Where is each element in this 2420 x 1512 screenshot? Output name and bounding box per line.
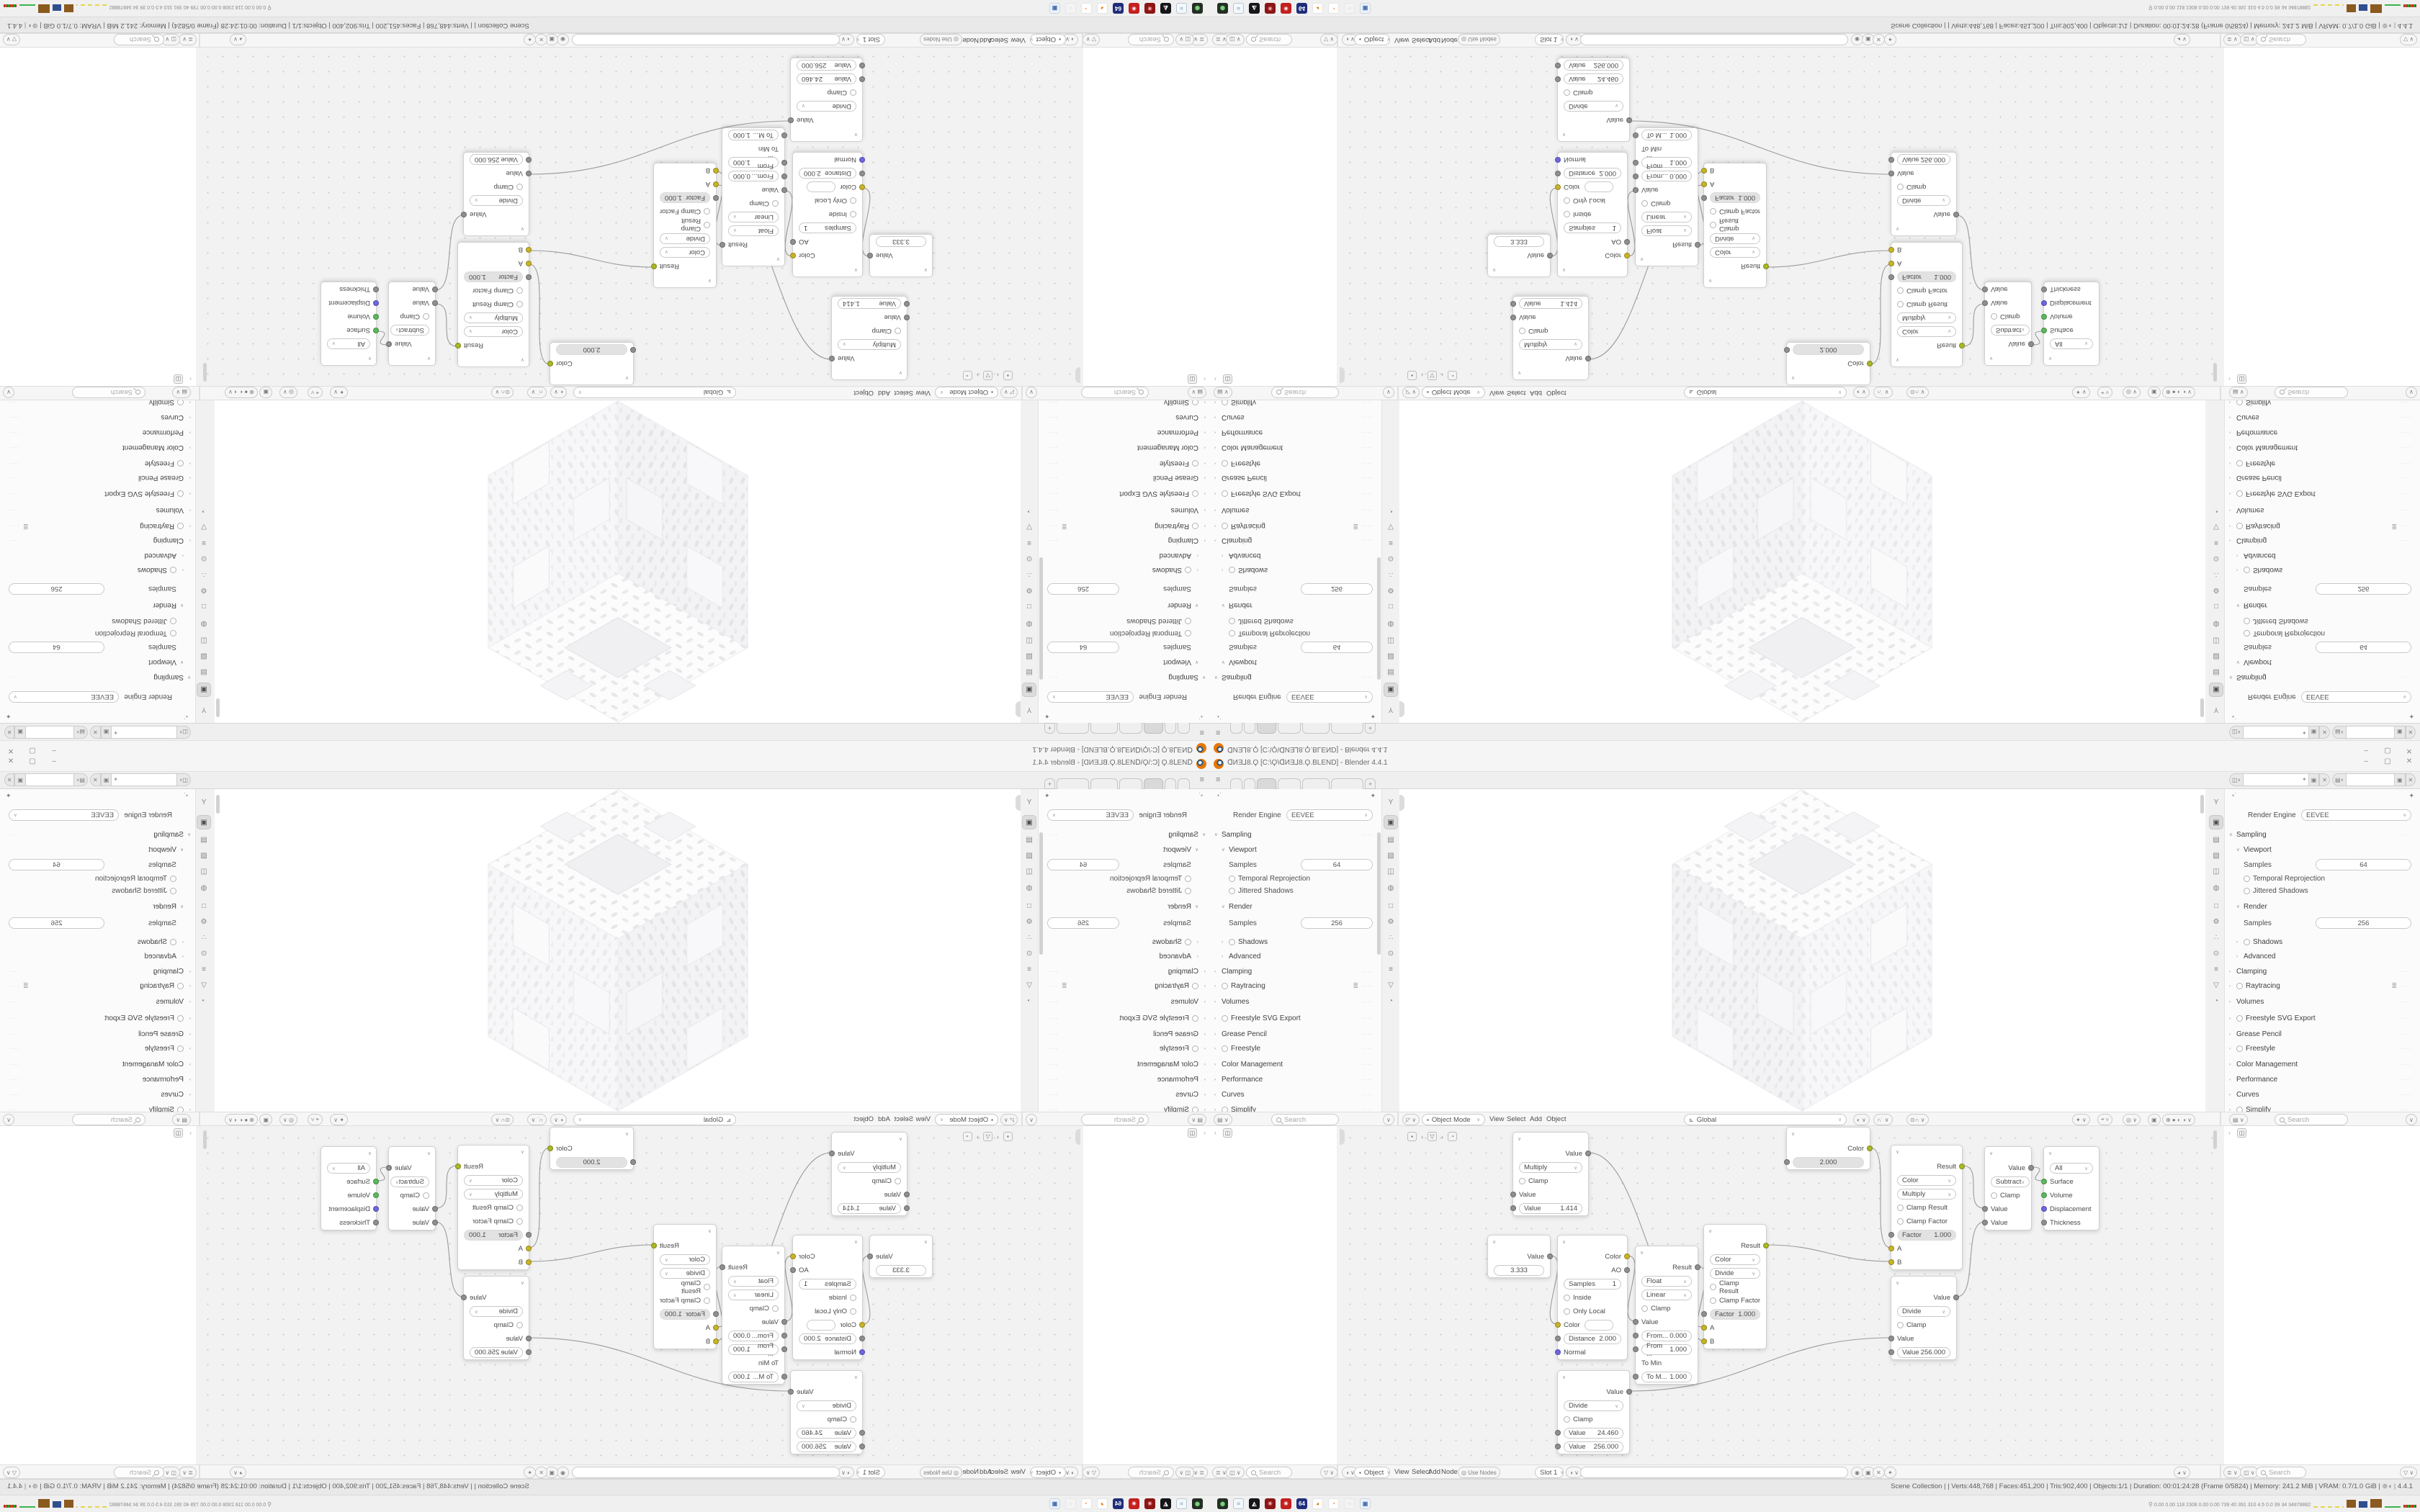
- socket-in[interactable]: [781, 132, 787, 138]
- options-button[interactable]: ∨: [3, 387, 14, 398]
- property-row[interactable]: ›Raytracing≣····: [4, 980, 191, 991]
- view-layer-selector[interactable]: ▤∨ ▣ ✕: [1, 726, 88, 739]
- value-field[interactable]: 256: [2316, 917, 2411, 929]
- socket-in-value[interactable]: [781, 1319, 787, 1325]
- shader-node-math-divide-256[interactable]: ∨ValueDivide∨ClampValueValue256.000: [463, 1276, 529, 1360]
- menu-node[interactable]: Node: [1441, 1468, 1458, 1476]
- socket-in-volume[interactable]: [373, 314, 379, 320]
- properties-tab-object[interactable]: □: [1384, 599, 1398, 613]
- property-row[interactable]: Jittered Shadows: [4, 885, 176, 896]
- socket-out-value[interactable]: [788, 1389, 794, 1395]
- expand-icon[interactable]: ›: [1204, 1130, 1206, 1136]
- property-row[interactable]: ›Raytracing≣····: [1043, 521, 1206, 532]
- editor-type-button[interactable]: ▤ ∨: [1188, 1114, 1206, 1125]
- workspace-tab[interactable]: [1244, 778, 1255, 789]
- menu-add[interactable]: Add: [1530, 1115, 1542, 1123]
- outliner-left[interactable]: › ◫: [1083, 48, 1210, 386]
- copy-icon[interactable]: ▣: [2308, 726, 2320, 739]
- property-row[interactable]: ›Freestyle····: [2229, 458, 2416, 469]
- node-value-field[interactable]: Value256.000: [1564, 60, 1623, 71]
- color-swatch[interactable]: [807, 181, 835, 192]
- property-row[interactable]: Jittered Shadows: [1043, 885, 1191, 896]
- filter-button[interactable]: ▽ ∨: [3, 1467, 20, 1478]
- expand-icon[interactable]: ›: [189, 376, 192, 382]
- proportional-editing-button[interactable]: ⊙∩ ∨: [491, 1114, 514, 1125]
- add-workspace-button[interactable]: +: [1365, 723, 1376, 734]
- node-value-field[interactable]: From...0.000: [728, 1331, 779, 1341]
- properties-tab-view-layer[interactable]: ▧: [197, 848, 211, 863]
- workspace-tab[interactable]: [1244, 723, 1255, 734]
- close-button[interactable]: ✕: [6, 747, 16, 755]
- area-divider[interactable]: [2220, 1465, 2221, 1478]
- socket-in-value[interactable]: [1633, 1319, 1639, 1325]
- taskbar-icon-obs[interactable]: ◉: [1217, 3, 1228, 14]
- property-row[interactable]: ›Freestyle SVG Export····: [4, 1012, 191, 1024]
- mode-icon-button[interactable]: ◸ ∨: [1402, 1114, 1420, 1125]
- copy-icon[interactable]: ▣: [101, 773, 112, 786]
- property-row[interactable]: ∨Sampling····: [1214, 829, 1377, 840]
- snap-node-button[interactable]: ◕ ∨: [2174, 34, 2190, 45]
- gizmo-button[interactable]: ✦ ∨: [2072, 387, 2090, 398]
- property-row[interactable]: Render EngineEEVEE∨: [1043, 809, 1206, 821]
- properties-tab-output[interactable]: ▤: [2209, 665, 2223, 680]
- socket-in[interactable]: [526, 1349, 532, 1355]
- node-dropdown[interactable]: Linear∨: [728, 212, 779, 222]
- socket-out-result[interactable]: [720, 242, 725, 248]
- shader-node-math-multiply-sqrt2[interactable]: ∨ValueMultiply∨ClampValueValue1.414: [831, 296, 907, 380]
- socket-out-color[interactable]: [790, 253, 796, 258]
- property-row[interactable]: ›Advanced: [1043, 550, 1198, 562]
- properties-tab-output[interactable]: ▤: [1384, 832, 1398, 847]
- property-row[interactable]: ›Performance····: [1043, 1074, 1206, 1085]
- shading-mode-buttons[interactable]: ⊕ ● ◐ ◑ ∨: [2162, 387, 2195, 398]
- properties-tab-particles[interactable]: ∴: [1384, 567, 1398, 582]
- socket-out-result[interactable]: [651, 1243, 657, 1248]
- node-dropdown[interactable]: Multiply∨: [838, 339, 901, 350]
- pivot-point-button[interactable]: ◐ ∨: [1853, 387, 1870, 398]
- proportional-editing-button[interactable]: ⊙∩ ∨: [1906, 387, 1929, 398]
- toggle-button[interactable]: ▣: [259, 1114, 272, 1125]
- property-row[interactable]: ›Advanced: [4, 950, 184, 962]
- property-row[interactable]: Temporal Reprojection: [2244, 628, 2416, 639]
- options-button[interactable]: ∨: [1026, 387, 1037, 398]
- pin-button[interactable]: ✦: [1884, 1467, 1896, 1478]
- overlays-button[interactable]: ⌖ ∨: [308, 1114, 323, 1125]
- socket-in-b[interactable]: [713, 1338, 719, 1344]
- node-dropdown[interactable]: Float∨: [1641, 225, 1692, 236]
- taskbar-icon-paint-red[interactable]: ✳: [1265, 1498, 1276, 1509]
- system-monitor-widget[interactable]: ⚲ 0.00 0.00 118 2308 0.00 0.00 739 40 39…: [2148, 1498, 2416, 1511]
- properties-tab-render[interactable]: ▣: [197, 683, 211, 697]
- socket-in-value[interactable]: [781, 187, 787, 193]
- menu-view[interactable]: View: [1489, 1115, 1504, 1123]
- node-dropdown[interactable]: Subtract∨: [390, 325, 429, 336]
- socket-in-value[interactable]: [1982, 287, 1988, 292]
- toggle-button[interactable]: ▣: [259, 387, 272, 398]
- xray-button[interactable]: ◎ ∨: [2123, 387, 2141, 398]
- socket-out-color[interactable]: [1624, 253, 1630, 258]
- shader-node-mix-multiply[interactable]: ∨ResultColor∨Multiply∨Clamp ResultClamp …: [1891, 242, 1963, 367]
- workspace-tab[interactable]: [1165, 778, 1176, 789]
- search-input[interactable]: Search: [1081, 1114, 1149, 1125]
- scene-icon[interactable]: ◫∨: [176, 726, 191, 739]
- workspace-tab[interactable]: [1165, 723, 1176, 734]
- view-layer-field[interactable]: [2347, 773, 2394, 786]
- shader-node-mix-partial[interactable]: ∨Color2.000: [1786, 1127, 1870, 1170]
- node-value-field[interactable]: Distance2.000: [1564, 1333, 1621, 1344]
- object-mode-dropdown[interactable]: ▪Object Mode∨: [1422, 1114, 1485, 1125]
- transform-orientation-dropdown[interactable]: ⊾Global∨: [1684, 1114, 1847, 1125]
- area-divider[interactable]: [1397, 1112, 1399, 1125]
- property-row[interactable]: ›Advanced: [2236, 550, 2416, 562]
- minimize-button[interactable]: –: [2361, 757, 2371, 765]
- socket-in-surface[interactable]: [2041, 1179, 2047, 1184]
- properties-tab-render[interactable]: ▣: [1384, 683, 1398, 697]
- render-engine-dropdown[interactable]: EEVEE∨: [1047, 691, 1134, 703]
- socket-in-volume[interactable]: [373, 1192, 379, 1198]
- property-row[interactable]: ›Color Management····: [4, 442, 191, 454]
- unlink-icon[interactable]: ✕: [2319, 773, 2330, 786]
- node-dropdown[interactable]: Color∨: [1710, 247, 1760, 258]
- properties-tab-scene[interactable]: ◫: [197, 864, 211, 878]
- scene-selector[interactable]: ◫∨ ✦ ▣ ✕: [90, 773, 191, 786]
- shader-node-material-output[interactable]: ∨All∨SurfaceVolumeDisplacementThickness: [321, 282, 377, 366]
- menu-node[interactable]: Node: [962, 1468, 979, 1476]
- socket-out-value[interactable]: [386, 341, 392, 347]
- taskbar-icon-obs[interactable]: ◉: [1217, 1498, 1228, 1509]
- workspace-tab[interactable]: [1119, 723, 1142, 734]
- property-row[interactable]: Samples256: [2244, 583, 2416, 595]
- property-row[interactable]: ›Grease Pencil····: [1214, 1028, 1377, 1040]
- search-input[interactable]: Search: [1246, 34, 1292, 45]
- render-engine-dropdown[interactable]: EEVEE∨: [1286, 809, 1373, 821]
- socket-in-surface[interactable]: [373, 328, 379, 333]
- editor-type-button[interactable]: ▤ ∨: [2229, 387, 2248, 398]
- node-value-field[interactable]: Factor1.000: [464, 1230, 523, 1241]
- shader-node-mix-divide[interactable]: ∨ResultColor∨Divide∨Clamp ResultClamp Fa…: [1703, 1224, 1767, 1349]
- property-row[interactable]: ›Grease Pencil····: [2229, 1028, 2416, 1040]
- socket-in-displacement[interactable]: [2041, 300, 2047, 306]
- menu-node[interactable]: Node: [962, 36, 979, 44]
- snap-node-button[interactable]: ◕ ∨: [2174, 1467, 2190, 1478]
- display-mode-button[interactable]: ◫ ∨: [161, 1467, 180, 1478]
- node-dropdown[interactable]: Color∨: [1710, 1254, 1760, 1265]
- properties-tab-constraints[interactable]: ≡: [1384, 536, 1398, 550]
- properties-tab-constraints[interactable]: ≡: [2209, 962, 2223, 976]
- scene-selector[interactable]: ◫∨ ✦ ▣ ✕: [2229, 773, 2330, 786]
- properties-tab-tool[interactable]: Y: [1384, 795, 1398, 809]
- property-row[interactable]: ›Raytracing≣····: [1043, 980, 1206, 991]
- transform-orientation-dropdown[interactable]: ⊾Global∨: [1684, 387, 1847, 398]
- property-row[interactable]: ›Clamping····: [1214, 966, 1377, 977]
- scrollbar[interactable]: [1039, 832, 1043, 955]
- properties-tab-material[interactable]: ◔: [197, 504, 211, 518]
- menu-hamburger-icon[interactable]: ≡: [1200, 775, 1204, 784]
- menu-add[interactable]: Add: [1530, 389, 1542, 397]
- search-input[interactable]: Search: [2275, 1114, 2348, 1125]
- color-swatch[interactable]: [1585, 181, 1613, 192]
- pin-icon[interactable]: ✦: [6, 792, 12, 800]
- shader-type-dropdown[interactable]: ▪Object∨: [1030, 34, 1066, 45]
- view-layer-selector[interactable]: ▤∨ ▣ ✕: [1, 773, 88, 786]
- editor-type-button[interactable]: ≣ ∨: [2223, 34, 2241, 45]
- expand-icon[interactable]: ›: [2228, 1130, 2231, 1136]
- expand-icon[interactable]: ›: [1214, 1130, 1216, 1136]
- property-row[interactable]: ∨Render: [1222, 600, 1377, 611]
- socket-out-result[interactable]: [1763, 1243, 1769, 1248]
- property-row[interactable]: ›Grease Pencil····: [1043, 1028, 1206, 1040]
- pin-icon[interactable]: ✦: [2408, 712, 2414, 720]
- properties-tab-data[interactable]: ▽: [2209, 520, 2223, 534]
- node-value-field[interactable]: Factor1.000: [660, 192, 710, 203]
- socket-in[interactable]: [904, 301, 910, 307]
- node-value-field[interactable]: Value24.460: [1564, 73, 1623, 84]
- properties-tab-scene[interactable]: ◫: [2209, 864, 2223, 878]
- shader-node-material-output[interactable]: ∨All∨SurfaceVolumeDisplacementThickness: [321, 1146, 377, 1230]
- node-value-field[interactable]: Samples1: [1564, 222, 1621, 233]
- value-field[interactable]: 64: [2316, 859, 2411, 870]
- viewport-scroll-pill[interactable]: [216, 795, 220, 814]
- socket-in-b[interactable]: [1888, 247, 1894, 253]
- minimize-button[interactable]: –: [49, 757, 59, 765]
- socket-out-value[interactable]: [1953, 1295, 1959, 1300]
- property-row[interactable]: ∨Viewport: [4, 657, 184, 668]
- socket-out-value[interactable]: [2028, 341, 2034, 347]
- display-mode-button[interactable]: ◫ ∨: [1226, 34, 1245, 45]
- property-row[interactable]: Temporal Reprojection: [2244, 873, 2416, 884]
- property-row[interactable]: ›Advanced: [4, 550, 184, 562]
- property-row[interactable]: ›Clamping····: [1214, 535, 1377, 546]
- filter-button[interactable]: ▽ ∨: [2400, 1467, 2417, 1478]
- taskbar-icon-blender[interactable]: ◕: [1097, 3, 1108, 14]
- viewport-3d[interactable]: [215, 789, 1021, 1112]
- node-value-field[interactable]: Value256.000: [1897, 154, 1950, 165]
- menu-add[interactable]: Add: [980, 1468, 992, 1476]
- socket-out-value[interactable]: [788, 117, 794, 123]
- socket-in[interactable]: [1888, 157, 1894, 163]
- render-engine-dropdown[interactable]: EEVEE∨: [9, 691, 119, 703]
- node-value-field[interactable]: Samples1: [1564, 1279, 1621, 1290]
- options-button[interactable]: ∨: [1383, 387, 1394, 398]
- socket-in-color[interactable]: [859, 184, 865, 190]
- socket-in-value[interactable]: [526, 171, 532, 176]
- shading-mode-buttons[interactable]: ⊕ ● ◐ ◑ ∨: [2162, 1114, 2195, 1125]
- pin-button[interactable]: ✦: [524, 34, 536, 45]
- property-row[interactable]: Jittered Shadows: [1229, 885, 1377, 896]
- title-bar[interactable]: ᗡИƎ⅃8.Ϙ [C:\Ϙ\ᗡИƎ⅃8.Ϙ.BLEND] - Blender 4…: [1210, 740, 2420, 756]
- area-divider[interactable]: [2220, 387, 2221, 400]
- slot-dropdown[interactable]: Slot 1∨: [1535, 1467, 1564, 1478]
- socket-in-displacement[interactable]: [373, 1206, 379, 1212]
- property-row[interactable]: Jittered Shadows: [2244, 616, 2416, 627]
- node-value-field[interactable]: From...0.000: [1641, 1331, 1692, 1341]
- socket-out-ao[interactable]: [1624, 1267, 1630, 1273]
- xray-button[interactable]: ◎ ∨: [279, 387, 297, 398]
- menu-view[interactable]: View: [1489, 389, 1504, 397]
- socket-out-value[interactable]: [867, 253, 873, 258]
- socket-out-result[interactable]: [1763, 264, 1769, 269]
- socket-out-value[interactable]: [461, 212, 467, 217]
- editor-type-button[interactable]: ▤ ∨: [172, 1114, 191, 1125]
- properties-tab-render[interactable]: ▣: [1022, 683, 1036, 697]
- unlink-icon[interactable]: ✕: [2406, 726, 2416, 739]
- shader-node-math-subtract[interactable]: ∨ValueSubtract∨ClampValueValue: [388, 1146, 436, 1230]
- menu-select[interactable]: Select: [1507, 389, 1525, 397]
- socket-in[interactable]: [1633, 1346, 1639, 1352]
- socket-in-value[interactable]: [432, 1220, 438, 1225]
- shader-node-math-divide-256[interactable]: ∨ValueDivide∨ClampValueValue256.000: [463, 152, 529, 236]
- workspace-tab[interactable]: [1144, 723, 1163, 734]
- socket-in-value[interactable]: [432, 287, 438, 292]
- shader-node-math-divide-24[interactable]: ∨ValueDivide∨ClampValue24.460Value256.00…: [1557, 58, 1630, 142]
- node-value-field[interactable]: Value1.414: [1519, 1203, 1582, 1214]
- title-bar[interactable]: ᗡИƎ⅃8.Ϙ [C:\Ϙ\ᗡИƎ⅃8.Ϙ.BLEND] - Blender 4…: [0, 756, 1210, 772]
- socket-out-value[interactable]: [829, 356, 835, 361]
- scene-name-field[interactable]: ✦: [112, 773, 176, 786]
- socket-in[interactable]: [1633, 1333, 1639, 1338]
- socket-in-value[interactable]: [1510, 315, 1516, 320]
- use-nodes-toggle[interactable]: ◎ Use Nodes: [1458, 34, 1500, 45]
- viewport-3d[interactable]: [215, 400, 1021, 723]
- property-row[interactable]: Samples256: [4, 583, 176, 595]
- taskbar-icon-firefox[interactable]: ◔: [1328, 1498, 1339, 1509]
- search-input[interactable]: Search: [114, 34, 164, 45]
- properties-tab-scene[interactable]: ◫: [2209, 634, 2223, 648]
- sidebar-toggle-handle[interactable]: [1399, 701, 1404, 717]
- taskbar-icon-notepad[interactable]: ≡: [1233, 1498, 1244, 1509]
- copy-icon[interactable]: ▣: [2308, 773, 2320, 786]
- properties-tab-output[interactable]: ▤: [1022, 832, 1036, 847]
- socket-out-value[interactable]: [1585, 1151, 1591, 1156]
- shader-node-ambient-occlusion[interactable]: ∨ColorAOSamples1InsideOnly LocalColorDis…: [792, 1235, 863, 1360]
- property-row[interactable]: ∨Render: [1043, 600, 1198, 611]
- properties-tab-physics[interactable]: ⊙: [197, 946, 211, 960]
- socket-in[interactable]: [781, 174, 787, 179]
- socket-out-color[interactable]: [1867, 1146, 1873, 1151]
- scene-name-field[interactable]: ✦: [2244, 773, 2308, 786]
- property-row[interactable]: ›Volumes····: [4, 505, 191, 516]
- node-value-field[interactable]: Value256.000: [797, 1441, 856, 1452]
- gizmo-button[interactable]: ✦ ∨: [330, 1114, 348, 1125]
- add-workspace-button[interactable]: +: [1365, 778, 1376, 789]
- pin-button[interactable]: ✦: [524, 1467, 536, 1478]
- expand-icon[interactable]: ›: [1214, 376, 1216, 382]
- options-button[interactable]: ∨: [2406, 1114, 2417, 1125]
- property-row[interactable]: ∨Render: [1043, 901, 1198, 912]
- property-row[interactable]: ›Performance····: [1214, 1074, 1377, 1085]
- menu-add[interactable]: Add: [1428, 1468, 1440, 1476]
- properties-tab-physics[interactable]: ⊙: [1384, 552, 1398, 566]
- value-field[interactable]: 256: [1047, 917, 1119, 929]
- menu-add[interactable]: Add: [878, 1115, 890, 1123]
- property-row[interactable]: ›Curves····: [1043, 412, 1206, 423]
- socket-in-b[interactable]: [1888, 1259, 1894, 1265]
- properties-tab-material[interactable]: ◔: [1384, 504, 1398, 518]
- property-row[interactable]: ›Shadows: [2236, 564, 2416, 576]
- properties-tab-object[interactable]: □: [1022, 599, 1036, 613]
- property-row[interactable]: ›Color Management····: [1214, 442, 1377, 454]
- unlink-icon[interactable]: ✕: [90, 773, 101, 786]
- unlink-icon[interactable]: ✕: [4, 726, 15, 739]
- socket-in[interactable]: [1633, 132, 1639, 138]
- scrollbar[interactable]: [2213, 1130, 2217, 1149]
- outliner-right[interactable]: › ◫: [0, 1126, 196, 1464]
- socket-in-thickness[interactable]: [373, 1220, 379, 1225]
- node-dropdown[interactable]: All∨: [327, 1163, 370, 1174]
- socket-in[interactable]: [713, 1311, 719, 1317]
- menu-view[interactable]: View: [1394, 1468, 1409, 1476]
- properties-tab-view-layer[interactable]: ▧: [2209, 848, 2223, 863]
- material-icon-button[interactable]: ◑ ∨: [838, 1467, 854, 1478]
- taskbar-icon-gimp[interactable]: ◭: [1249, 3, 1260, 14]
- area-divider[interactable]: [1021, 1112, 1023, 1125]
- color-swatch[interactable]: [807, 1320, 835, 1331]
- menu-select[interactable]: Select: [1507, 1115, 1525, 1123]
- socket-in-b[interactable]: [526, 247, 532, 253]
- workspace-tab[interactable]: [1302, 778, 1330, 789]
- menu-node[interactable]: Node: [1441, 36, 1458, 44]
- workspace-tab[interactable]: [1119, 778, 1142, 789]
- search-input[interactable]: Search: [72, 387, 145, 398]
- options-button[interactable]: ∨: [3, 1114, 14, 1125]
- pin-icon[interactable]: ✦: [113, 776, 118, 783]
- socket-out-value[interactable]: [1626, 1389, 1632, 1395]
- properties-tab-particles[interactable]: ∴: [1022, 930, 1036, 945]
- properties-tab-object[interactable]: □: [2209, 899, 2223, 913]
- node-dropdown[interactable]: Divide∨: [1564, 1400, 1623, 1411]
- socket-out-value[interactable]: [1626, 117, 1632, 123]
- gizmo-button[interactable]: ✦ ∨: [2072, 1114, 2090, 1125]
- socket-in[interactable]: [781, 1346, 787, 1352]
- pin-icon[interactable]: ✦: [6, 712, 12, 720]
- menu-add[interactable]: Add: [980, 36, 992, 44]
- material-name-field[interactable]: [572, 34, 840, 45]
- node-value-field[interactable]: Samples1: [799, 1279, 856, 1290]
- pivot-point-button[interactable]: ◐ ∨: [550, 1114, 567, 1125]
- scrollbar[interactable]: [1377, 557, 1381, 680]
- filter-button[interactable]: ▽ ∨: [1320, 1467, 1337, 1478]
- socket-out-result[interactable]: [720, 1264, 725, 1270]
- taskbar-icon-settings-red[interactable]: ✳: [1281, 1498, 1291, 1509]
- maximize-button[interactable]: ▢: [27, 747, 37, 755]
- properties-tab-physics[interactable]: ⊙: [1022, 946, 1036, 960]
- overlays-button[interactable]: ⌖ ∨: [2097, 387, 2112, 398]
- socket-in-value[interactable]: [1888, 1336, 1894, 1341]
- title-bar[interactable]: ᗡИƎ⅃8.Ϙ [C:\Ϙ\ᗡИƎ⅃8.Ϙ.BLEND] - Blender 4…: [1210, 756, 2420, 772]
- node-value-field[interactable]: 2.000: [1793, 1157, 1864, 1168]
- node-dropdown[interactable]: Divide∨: [797, 101, 856, 112]
- properties-tab-physics[interactable]: ⊙: [1384, 946, 1398, 960]
- property-row[interactable]: ›Performance····: [2229, 1074, 2416, 1085]
- scrollbar[interactable]: [1377, 832, 1381, 955]
- socket-in[interactable]: [859, 1336, 865, 1341]
- properties-tab-particles[interactable]: ∴: [1022, 567, 1036, 582]
- taskbar-icon-blender[interactable]: ◕: [1312, 3, 1323, 14]
- search-input[interactable]: Search: [2256, 34, 2306, 45]
- node-value-field[interactable]: From ...1.000: [1641, 1344, 1692, 1355]
- properties-tab-modifiers[interactable]: ⚙: [2209, 583, 2223, 598]
- property-row[interactable]: Render EngineEEVEE∨: [4, 809, 191, 821]
- property-row[interactable]: ›Clamping····: [1043, 966, 1206, 977]
- taskbar-icon-fl64[interactable]: 64: [1113, 1498, 1124, 1509]
- property-row[interactable]: Render EngineEEVEE∨: [1214, 809, 1377, 821]
- socket-out-value[interactable]: [1953, 212, 1959, 217]
- node-dropdown[interactable]: Divide∨: [470, 195, 523, 206]
- property-row[interactable]: ›Shadows: [1222, 564, 1377, 576]
- taskbar-icon-display-settings[interactable]: ▣: [1360, 1498, 1371, 1509]
- xray-button[interactable]: ◎ ∨: [279, 1114, 297, 1125]
- property-row[interactable]: ›Freestyle SVG Export····: [1214, 1012, 1377, 1024]
